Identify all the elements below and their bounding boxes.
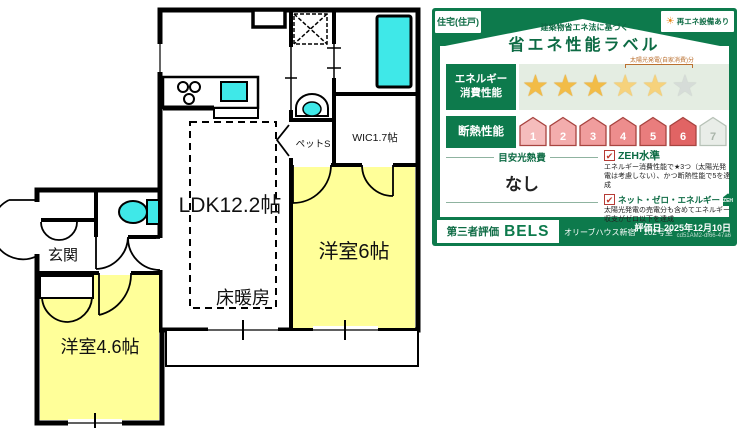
insulation-level: 6 [680, 131, 686, 143]
checkbox-checked-icon: ✔ [604, 150, 615, 161]
star-filled-icon: ★ [522, 70, 552, 103]
bedroom-6-label: 洋室6帖 [318, 240, 389, 263]
bels-certification: 第三者評価 BELS [437, 220, 559, 243]
utility-cost-label: 目安光熱費 [498, 150, 546, 164]
star-filled-icon: ★ [582, 70, 612, 103]
star-solar-icon: ★ [612, 70, 642, 103]
energy-performance-label: エネルギー 消費性能 [446, 64, 516, 110]
energy-label-card: 住宅(住戸) ☀ 再エネ設備あり 建築物省エネ法に基づく 省エネ性能ラベル エネ… [432, 8, 737, 246]
insulation-level: 4 [620, 131, 627, 143]
washer-space [294, 14, 327, 44]
star-rating: ★★★★★★ [519, 64, 729, 110]
floor-heating-label: 床暖房 [216, 288, 270, 308]
checkbox-checked-icon: ✔ [604, 194, 615, 205]
energy-label-line2: 消費性能 [446, 86, 516, 100]
screenshot-root: LDK12.2帖 床暖房 洋室6帖 洋室4.6帖 玄関 ペットS WIC1.7帖… [0, 0, 744, 428]
insulation-level: 1 [530, 131, 536, 143]
zeh-house-badge: ZEH [723, 193, 733, 206]
pipe-space [253, 10, 285, 27]
balcony [166, 330, 418, 366]
insulation-level: 2 [560, 131, 566, 143]
pet-space-label: ペットS [296, 139, 331, 150]
stove-burner-icon [184, 94, 194, 104]
wic-label: WIC1.7帖 [352, 131, 398, 144]
insulation-level: 7 [710, 131, 716, 143]
divider-line [550, 157, 598, 158]
stove-burner-icon [190, 82, 200, 92]
closet-bedroom-46 [40, 276, 93, 298]
bathtub [377, 16, 411, 87]
zeh-standard-desc: エネルギー消費性能で★3つ（太陽光発電は考慮しない）、かつ断熱性能で5を達成 [604, 164, 732, 190]
insulation-scale: 1 2 3 4 5 6 7 [519, 116, 731, 148]
star-solar-icon: ★ [642, 70, 672, 103]
entrance-door [0, 200, 37, 259]
divider-line [446, 202, 598, 203]
document-id: cd51AM2-df66-47a6 [599, 233, 731, 239]
kitchen-sink [221, 82, 247, 101]
insulation-level: 5 [650, 131, 656, 143]
floor-plan: LDK12.2帖 床暖房 洋室6帖 洋室4.6帖 玄関 ペットS WIC1.7帖 [0, 0, 432, 428]
utility-cost-value: なし [446, 170, 598, 195]
zeh-section: ✔ ZEH水準 エネルギー消費性能で★3つ（太陽光発電は考慮しない）、かつ断熱性… [604, 148, 732, 228]
entrance-label: 玄関 [48, 247, 78, 264]
solar-note: 太陽光発電(自家消費)分 [612, 55, 712, 64]
net-zero-label: ネット・ゼロ・エネルギー [618, 194, 720, 206]
star-empty-icon: ★ [672, 70, 702, 103]
star-filled-icon: ★ [552, 70, 582, 103]
energy-label-line1: エネルギー [446, 72, 516, 86]
utility-cost-divider: 目安光熱費 [446, 150, 598, 164]
zeh-standard-row: ✔ ZEH水準 [604, 148, 732, 163]
label-title: 省エネ性能ラベル [432, 31, 737, 55]
washbasin-bowl [303, 102, 321, 116]
ldk-label: LDK12.2帖 [179, 194, 282, 217]
net-zero-row: ✔ ネット・ゼロ・エネルギー ZEH [604, 193, 732, 206]
toilet-tank [147, 200, 159, 224]
bedroom-46-label: 洋室4.6帖 [60, 337, 139, 357]
insulation-level: 3 [590, 131, 596, 143]
zeh-standard-label: ZEH水準 [618, 148, 660, 163]
divider-line [446, 157, 494, 158]
insulation-performance-label: 断熱性能 [446, 116, 516, 148]
solar-note-bracket [625, 64, 693, 68]
stove-burner-icon [178, 82, 188, 92]
toilet-bowl [119, 201, 147, 223]
cert-name: BELS [504, 223, 549, 241]
cert-label: 第三者評価 [447, 224, 500, 239]
